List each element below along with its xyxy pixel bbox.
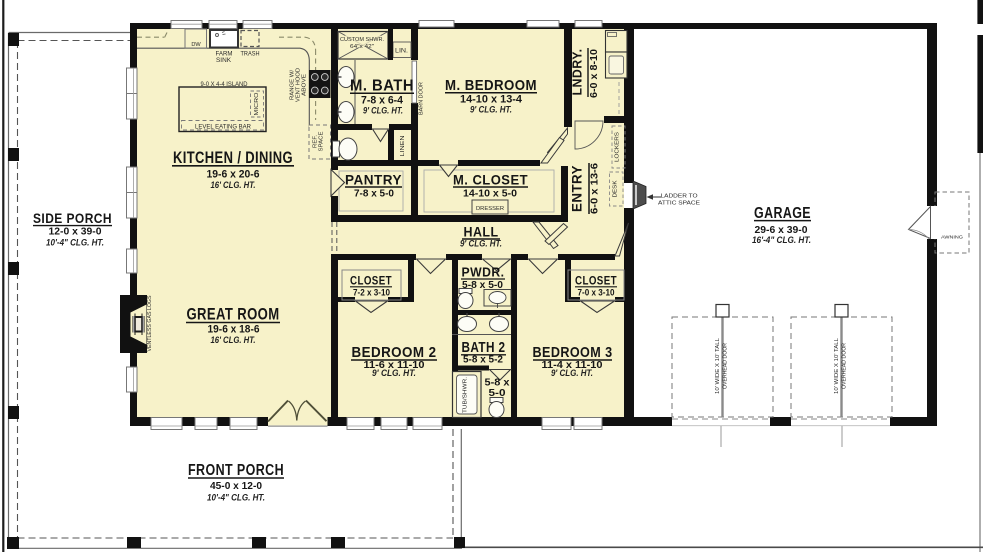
svg-text:19-6 x 18-6: 19-6 x 18-6 xyxy=(208,324,260,336)
svg-text:ATTIC SPACE: ATTIC SPACE xyxy=(658,201,700,207)
svg-text:9' CLG. HT.: 9' CLG. HT. xyxy=(460,239,502,249)
svg-text:LOCKERS: LOCKERS xyxy=(615,131,621,162)
svg-text:LINEN: LINEN xyxy=(400,136,406,157)
svg-text:12-0 x 39-0: 12-0 x 39-0 xyxy=(49,226,102,238)
svg-text:LIN.: LIN. xyxy=(395,49,408,55)
svg-text:SINK: SINK xyxy=(216,58,231,64)
svg-text:10'-4" CLG. HT.: 10'-4" CLG. HT. xyxy=(207,493,265,503)
svg-text:SIDE PORCH: SIDE PORCH xyxy=(33,210,112,226)
svg-text:LEVEL EATING BAR: LEVEL EATING BAR xyxy=(195,125,252,131)
svg-text:9' CLG. HT.: 9' CLG. HT. xyxy=(363,106,403,116)
svg-text:7-8 x 5-0: 7-8 x 5-0 xyxy=(354,188,394,200)
svg-text:GREAT ROOM: GREAT ROOM xyxy=(187,305,280,324)
svg-text:10'-4" CLG. HT.: 10'-4" CLG. HT. xyxy=(46,238,104,248)
svg-text:TRASH: TRASH xyxy=(241,52,260,58)
svg-text:CLOSET: CLOSET xyxy=(350,274,392,288)
svg-text:PANTRY: PANTRY xyxy=(345,172,402,188)
svg-text:SPACE: SPACE xyxy=(319,131,325,151)
svg-text:MICRO: MICRO xyxy=(254,92,260,115)
svg-text:VENTLESS GAS LOGS: VENTLESS GAS LOGS xyxy=(147,295,153,351)
svg-text:DRESSER: DRESSER xyxy=(476,206,504,212)
svg-text:LNDRY.: LNDRY. xyxy=(570,49,585,96)
svg-text:5-8 x 5-2: 5-8 x 5-2 xyxy=(463,354,503,366)
svg-text:ENTRY: ENTRY xyxy=(569,165,585,212)
svg-text:CLOSET: CLOSET xyxy=(575,274,617,288)
svg-text:7-0 x 3-10: 7-0 x 3-10 xyxy=(578,288,615,298)
svg-text:64"x 42": 64"x 42" xyxy=(350,44,374,50)
svg-text:DW: DW xyxy=(191,42,201,48)
svg-text:CUSTOM SHWR.: CUSTOM SHWR. xyxy=(340,37,384,43)
svg-text:TUB/SHWR.: TUB/SHWR. xyxy=(463,376,469,413)
svg-text:16' CLG. HT.: 16' CLG. HT. xyxy=(211,180,256,190)
svg-text:M. BEDROOM: M. BEDROOM xyxy=(445,77,537,94)
svg-text:AWNING: AWNING xyxy=(941,235,963,241)
svg-text:9' CLG. HT.: 9' CLG. HT. xyxy=(470,105,512,115)
svg-text:6-0 x 13-6: 6-0 x 13-6 xyxy=(589,163,601,214)
svg-text:PWDR.: PWDR. xyxy=(462,265,505,280)
svg-text:GARAGE: GARAGE xyxy=(754,205,811,222)
svg-text:OVERHEAD DOOR: OVERHEAD DOOR xyxy=(723,343,729,389)
svg-text:9' CLG. HT.: 9' CLG. HT. xyxy=(551,368,593,378)
svg-text:M. CLOSET: M. CLOSET xyxy=(453,172,528,188)
svg-text:9' CLG. HT.: 9' CLG. HT. xyxy=(372,368,416,378)
svg-text:M. BATH: M. BATH xyxy=(350,78,414,95)
svg-text:10' WIDE X 10' TALL: 10' WIDE X 10' TALL xyxy=(834,338,840,394)
svg-text:FARM: FARM xyxy=(216,52,233,58)
svg-text:LADDER TO: LADDER TO xyxy=(661,194,699,200)
svg-text:OVERHEAD DOOR: OVERHEAD DOOR xyxy=(842,343,848,389)
svg-text:DESK: DESK xyxy=(613,180,619,198)
svg-text:14-10 x 5-0: 14-10 x 5-0 xyxy=(463,188,517,200)
svg-text:45-0 x 12-0: 45-0 x 12-0 xyxy=(210,480,262,492)
svg-text:7-2 x 3-10: 7-2 x 3-10 xyxy=(353,288,390,298)
svg-text:16'-4" CLG. HT.: 16'-4" CLG. HT. xyxy=(752,235,811,245)
svg-text:6-0 x 8-10: 6-0 x 8-10 xyxy=(588,49,600,98)
svg-text:HALL: HALL xyxy=(464,224,499,240)
svg-text:10' WIDE X 10' TALL: 10' WIDE X 10' TALL xyxy=(715,338,721,394)
svg-text:ABOVE: ABOVE xyxy=(302,74,308,96)
svg-text:KITCHEN / DINING: KITCHEN / DINING xyxy=(173,148,293,167)
svg-text:5-0: 5-0 xyxy=(489,387,506,399)
svg-text:19-6 x 20-6: 19-6 x 20-6 xyxy=(207,169,260,181)
svg-text:16' CLG. HT.: 16' CLG. HT. xyxy=(211,335,256,345)
svg-text:5-8 x 5-0: 5-8 x 5-0 xyxy=(462,280,503,291)
svg-text:FRONT PORCH: FRONT PORCH xyxy=(188,462,284,479)
svg-text:BARN DOOR: BARN DOOR xyxy=(419,82,425,115)
svg-text:9-0 X 4-4 ISLAND: 9-0 X 4-4 ISLAND xyxy=(201,82,249,88)
